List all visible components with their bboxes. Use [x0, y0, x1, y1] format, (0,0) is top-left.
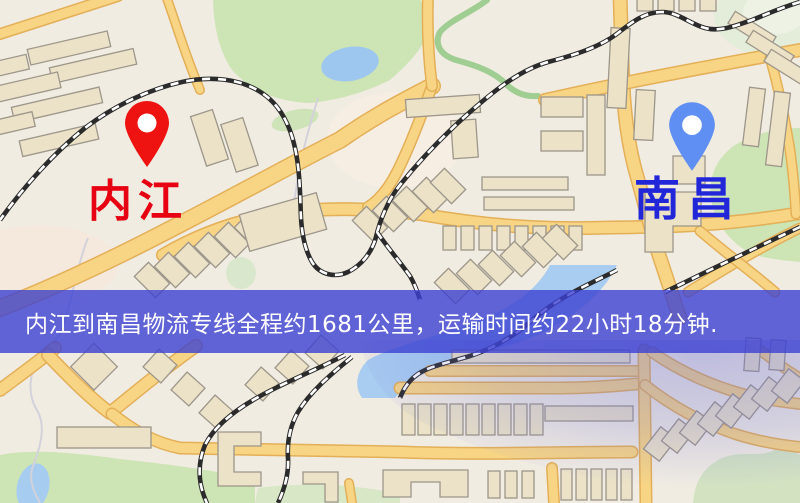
destination-label: 南昌: [634, 176, 742, 222]
origin-pin-icon: [121, 99, 173, 169]
route-info-text: 内江到南昌物流专线全程约1681公里，运输时间约22小时18分钟.: [25, 305, 718, 339]
destination-pin-icon: [665, 100, 719, 173]
origin-label: 内江: [88, 180, 188, 224]
route-info-banner: 内江到南昌物流专线全程约1681公里，运输时间约22小时18分钟.: [0, 290, 800, 353]
map-canvas[interactable]: [0, 0, 800, 503]
logistics-route-map: 内江 南昌 内江到南昌物流专线全程约1681公里，运输时间约22小时18分钟.: [0, 0, 800, 503]
